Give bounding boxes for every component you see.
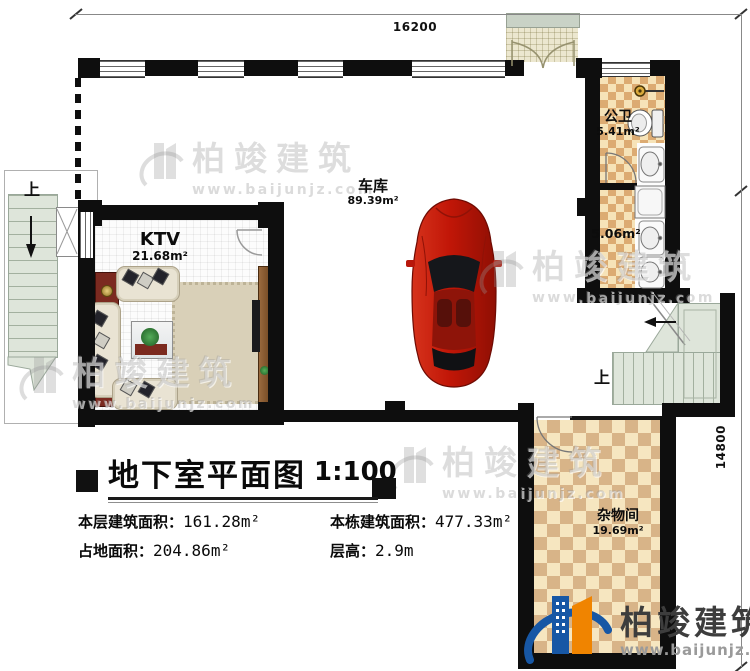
wall-segment [505, 60, 524, 76]
room-area: 5.41m² [592, 126, 644, 138]
wall-segment [343, 60, 412, 76]
rug [172, 282, 264, 404]
stat-label: 层高： [330, 542, 375, 560]
dimension-line-right [741, 14, 742, 667]
dimension-right-value: 14800 [714, 425, 728, 469]
dashed-boundary [75, 78, 81, 205]
watermark-building-icon [138, 135, 184, 195]
room-label-wash-area: 5.06m² [590, 227, 642, 241]
cabinet-ornament [101, 285, 113, 297]
room-label-storage: 杂物间 19.69m² [577, 509, 659, 537]
title-square-left [76, 470, 98, 492]
wall-segment [665, 62, 680, 288]
wall-segment [268, 228, 284, 424]
watermark-building-icon [478, 243, 524, 303]
logo-brand: 柏竣建筑 [620, 596, 750, 644]
wall-segment [244, 60, 298, 76]
room-area: 89.39m² [331, 195, 415, 207]
dimension-line-top [75, 14, 742, 15]
room-name: 车库 [331, 178, 415, 195]
plan-title: 地下室平面图 [108, 450, 306, 495]
title-underline-shadow [108, 502, 378, 503]
stat-land-area: 占地面积：204.86m² [78, 540, 230, 561]
wall-pillar [385, 401, 405, 410]
window [80, 212, 93, 258]
window [602, 62, 650, 77]
stat-value: 2.9m [375, 541, 414, 560]
stairs-up-label-left: 上 [24, 176, 40, 200]
room-name: 杂物间 [577, 509, 659, 525]
stairs-up-label-right: 上 [594, 364, 610, 388]
stat-floor-area: 本层建筑面积：161.28m² [78, 511, 260, 532]
tv [252, 300, 260, 352]
right-stairs-steps [612, 352, 722, 405]
wall-segment [78, 205, 258, 220]
left-exterior-stairs [8, 194, 58, 358]
room-name: KTV [118, 230, 202, 250]
logo-building-icon [512, 586, 616, 670]
porch-step [506, 13, 580, 28]
window [198, 60, 244, 78]
window [100, 60, 145, 78]
wall-segment [570, 416, 662, 420]
window [412, 60, 505, 78]
room-label-public-bath: 公卫 5.41m² [592, 110, 644, 138]
wall-segment [145, 60, 198, 76]
stat-value: 477.33m² [435, 512, 512, 531]
stat-label: 占地面积： [78, 542, 153, 560]
window [298, 60, 343, 78]
room-area: 5.06m² [590, 227, 642, 241]
floor-plan-canvas: 柏竣建筑 www.baijunjz.com 柏竣建筑 www.baijunjz.… [0, 0, 750, 671]
wall-segment [284, 410, 520, 422]
title-square-right [372, 478, 396, 499]
wall-segment [577, 288, 690, 303]
wall-segment [585, 62, 600, 288]
stat-value: 204.86m² [153, 541, 230, 560]
watermark-brand: 柏竣建筑 [192, 132, 375, 180]
wall-pillar [258, 402, 284, 425]
wall-segment [78, 58, 100, 78]
car [406, 199, 502, 387]
shaft-box [56, 207, 80, 257]
wall-pillar [258, 202, 284, 228]
stat-label: 本层建筑面积： [78, 513, 183, 531]
sink-alcove [637, 143, 665, 185]
stat-floor-height: 层高：2.9m [330, 540, 414, 561]
plant [141, 328, 159, 346]
room-label-garage: 车库 89.39m² [331, 178, 415, 207]
logo-url: www.baijunjz.com [620, 641, 750, 659]
wall-pillar [577, 198, 586, 216]
room-label-ktv: KTV 21.68m² [118, 230, 202, 264]
entry-porch [506, 26, 578, 62]
wall-divider [585, 183, 637, 190]
room-area: 19.69m² [577, 525, 659, 537]
room-area: 21.68m² [118, 250, 202, 263]
wall-segment [78, 410, 284, 425]
stat-label: 本栋建筑面积： [330, 513, 435, 531]
wall-segment [662, 403, 735, 417]
stat-building-area: 本栋建筑面积：477.33m² [330, 511, 512, 532]
dimension-top-value: 16200 [385, 20, 445, 34]
wall-segment [720, 293, 735, 417]
room-name: 公卫 [592, 110, 644, 126]
stat-value: 161.28m² [183, 512, 260, 531]
title-underline [108, 497, 378, 500]
